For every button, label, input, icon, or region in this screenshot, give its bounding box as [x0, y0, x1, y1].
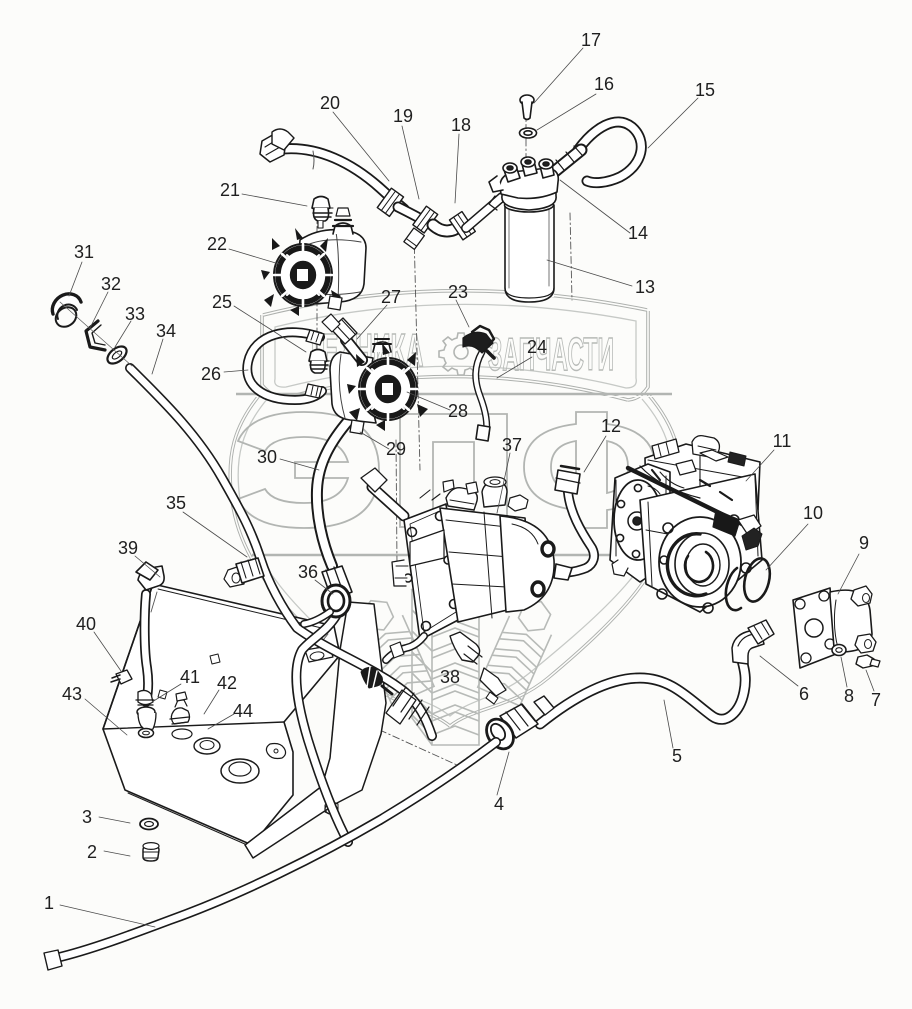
svg-text:35: 35 — [166, 493, 186, 513]
svg-text:39: 39 — [118, 538, 138, 558]
svg-text:34: 34 — [156, 321, 176, 341]
svg-text:7: 7 — [871, 690, 881, 710]
svg-text:18: 18 — [451, 115, 471, 135]
svg-text:9: 9 — [859, 533, 869, 553]
svg-text:43: 43 — [62, 684, 82, 704]
svg-text:28: 28 — [448, 401, 468, 421]
svg-text:42: 42 — [217, 673, 237, 693]
svg-text:4: 4 — [494, 794, 504, 814]
svg-text:21: 21 — [220, 180, 240, 200]
svg-text:11: 11 — [773, 431, 792, 451]
svg-text:22: 22 — [207, 234, 227, 254]
svg-text:8: 8 — [844, 686, 854, 706]
svg-text:29: 29 — [386, 439, 406, 459]
svg-text:3: 3 — [82, 807, 92, 827]
svg-text:24: 24 — [527, 337, 547, 357]
svg-text:10: 10 — [803, 503, 823, 523]
svg-text:20: 20 — [320, 93, 340, 113]
svg-text:41: 41 — [180, 667, 200, 687]
svg-text:30: 30 — [257, 447, 277, 467]
svg-text:37: 37 — [502, 435, 522, 455]
svg-text:26: 26 — [201, 364, 221, 384]
svg-text:14: 14 — [628, 223, 648, 243]
svg-text:25: 25 — [212, 292, 232, 312]
svg-text:32: 32 — [101, 274, 121, 294]
svg-text:33: 33 — [125, 304, 145, 324]
svg-text:17: 17 — [581, 30, 601, 50]
svg-text:13: 13 — [635, 277, 655, 297]
svg-text:5: 5 — [672, 746, 682, 766]
svg-text:19: 19 — [393, 106, 413, 126]
svg-text:1: 1 — [44, 893, 54, 913]
svg-text:16: 16 — [594, 74, 614, 94]
svg-text:38: 38 — [440, 667, 460, 687]
svg-text:44: 44 — [233, 701, 253, 721]
svg-text:23: 23 — [448, 282, 468, 302]
svg-text:31: 31 — [74, 242, 94, 262]
svg-text:2: 2 — [87, 842, 97, 862]
svg-text:15: 15 — [695, 80, 715, 100]
svg-text:6: 6 — [799, 684, 809, 704]
svg-text:40: 40 — [76, 614, 96, 634]
svg-text:27: 27 — [381, 287, 401, 307]
svg-text:36: 36 — [298, 562, 318, 582]
svg-text:12: 12 — [601, 416, 621, 436]
